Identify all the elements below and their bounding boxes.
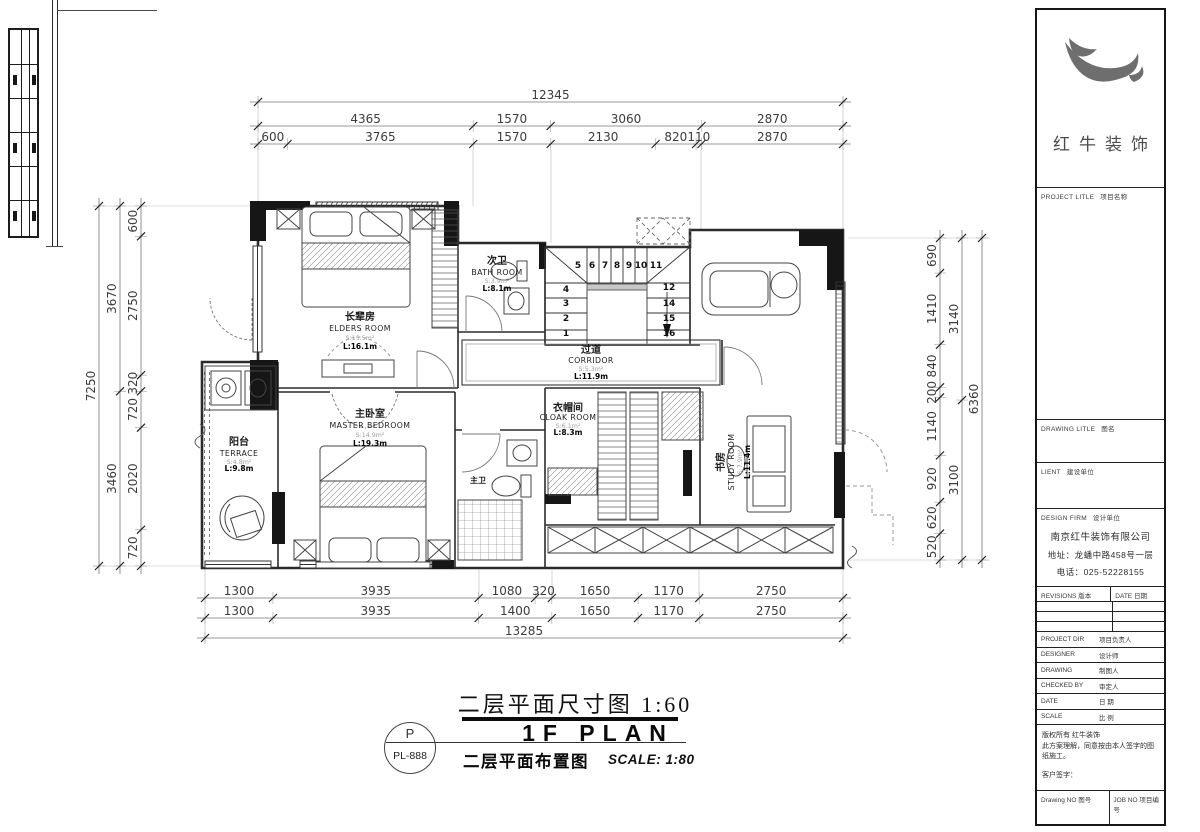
doors	[210, 296, 762, 472]
study-chaise	[702, 263, 800, 315]
scale-label: SCALE: 1:80	[608, 752, 695, 767]
field-row: SCALE比 例	[1037, 710, 1164, 726]
field-row: DRAWING制图人	[1037, 663, 1164, 679]
dim-value: 2750	[756, 584, 787, 598]
svg-text:L:19.3m: L:19.3m	[353, 439, 387, 448]
strip-line	[29, 30, 30, 236]
dim-value: 2130	[588, 130, 619, 144]
svg-text:阳台: 阳台	[229, 435, 249, 448]
logo-area: 红牛装饰	[1037, 10, 1164, 187]
date-column-label: DATE 日期	[1110, 587, 1164, 601]
dim-value: 520	[925, 535, 939, 558]
dim-row: 69014108402001140920620520	[925, 230, 946, 568]
dim-value: 1570	[497, 130, 528, 144]
rotated-label-mark	[32, 143, 36, 153]
rotated-label-mark	[32, 75, 36, 85]
label-elders-room: 长辈房 ELDERS ROOM S:15.5m² L:16.1m	[329, 310, 391, 351]
dim-value: 920	[925, 467, 939, 490]
field-label-en: DRAWING	[1041, 667, 1099, 674]
strip-line	[10, 200, 37, 201]
red-bull-logo-icon	[1055, 26, 1147, 98]
skylight-dashed	[637, 218, 690, 244]
label-master-bedroom: 主卧室 MASTER BEDROOM S:14.9m² L:19.3m	[330, 407, 411, 448]
dim-value: 840	[925, 355, 939, 378]
label-master-bath: 主卫	[470, 475, 486, 485]
project-title-section: PROJECT LITLE项目名称	[1037, 187, 1164, 419]
svg-text:长辈房: 长辈房	[345, 310, 375, 323]
left-sheet-strip	[8, 28, 39, 238]
copyright-line: 客户签字：	[1042, 771, 1159, 782]
strip-line	[21, 30, 22, 236]
dim-value: 1410	[925, 294, 939, 325]
dim-value: 3460	[105, 463, 119, 494]
strip-line	[10, 64, 37, 65]
project-label-cn: 项目名称	[1100, 194, 1127, 201]
elders-wardrobe	[432, 210, 458, 328]
dim-value: 2870	[757, 130, 788, 144]
dim-value: 3935	[361, 604, 392, 618]
dim-value: 1300	[224, 584, 255, 598]
field-label-en: PROJECT DIR	[1041, 636, 1099, 643]
dim-value: 1650	[580, 604, 611, 618]
firm-label-cn: 设计单位	[1093, 515, 1120, 522]
stair-number: 11	[650, 261, 663, 271]
field-row: CHECKED BY审定人	[1037, 679, 1164, 695]
dim-value: 3060	[611, 112, 642, 126]
wall-break-mark	[195, 424, 205, 448]
dim-value: 3935	[361, 584, 392, 598]
master-bath-door	[462, 434, 500, 472]
dim-row: 60027503207202020720	[126, 198, 147, 574]
dim-value: 6360	[967, 384, 981, 415]
dim-value: 110	[687, 130, 710, 144]
dim-value: 1080	[492, 584, 523, 598]
copyright-line: 此方案理解，同意按由本人签字的图纸施工。	[1042, 742, 1159, 763]
dim-row: 36703460	[105, 198, 126, 574]
client-label-cn: 建设单位	[1067, 469, 1094, 476]
svg-text:S:14.9m²: S:14.9m²	[356, 432, 385, 439]
revision-row	[1037, 622, 1164, 632]
plan-code-marker: P PL-888	[384, 722, 436, 774]
stair-number: 2	[563, 314, 569, 324]
stair-number: 10	[635, 261, 648, 271]
drawing-label-en: DRAWING LITLE	[1041, 426, 1095, 433]
svg-text:TERRACE: TERRACE	[219, 449, 259, 458]
dim-value: 720	[126, 398, 140, 421]
field-row: DATE日 期	[1037, 694, 1164, 710]
dim-plan-title: 二层平面尺寸图 1:60	[455, 687, 695, 719]
svg-text:CLOAK ROOM: CLOAK ROOM	[540, 413, 597, 422]
master-bath-fixtures	[458, 440, 537, 560]
client-section: LIENT建设单位	[1037, 462, 1164, 508]
dim-value: 3140	[947, 304, 961, 335]
revision-row	[1037, 602, 1164, 612]
rotated-label-mark	[32, 211, 36, 221]
rotated-label-mark	[13, 75, 17, 85]
dim-value: 1570	[497, 112, 528, 126]
company-name: 红牛装饰	[1037, 130, 1164, 155]
svg-text:L:16.1m: L:16.1m	[343, 342, 377, 351]
dim-value: 12345	[531, 88, 569, 102]
field-label-cn: 项目负责人	[1099, 634, 1132, 644]
svg-text:次卫: 次卫	[487, 254, 507, 267]
field-label-en: CHECKED BY	[1041, 682, 1099, 689]
svg-text:L:9.8m: L:9.8m	[225, 464, 254, 473]
svg-text:BATH ROOM: BATH ROOM	[471, 268, 522, 277]
field-label-cn: 设计师	[1099, 650, 1119, 660]
dim-value: 820	[664, 130, 687, 144]
sheet-edge-line	[57, 0, 58, 246]
drawing-sheet: { "titles": { "dim_plan_title": "二层平面尺寸图…	[0, 0, 1200, 832]
revision-row	[1037, 612, 1164, 622]
rotated-label-mark	[13, 211, 17, 221]
field-label-cn: 日 期	[1099, 696, 1114, 706]
field-label-en: DATE	[1041, 698, 1099, 705]
drawing-no-cell: Drawing NO 图号	[1037, 791, 1110, 826]
label-terrace: 阳台 TERRACE S:4.8m² L:9.8m	[219, 435, 259, 473]
project-label-en: PROJECT LITLE	[1041, 194, 1094, 201]
copyright-note: 版权所有 红牛装饰此方案理解，同意按由本人签字的图纸施工。客户签字：	[1037, 725, 1164, 790]
dim-value: 7250	[84, 371, 98, 402]
job-no-label: JOB NO 项目编号	[1113, 797, 1159, 814]
dim-value: 4365	[350, 112, 381, 126]
svg-text:书房: 书房	[714, 452, 727, 472]
dim-value: 2020	[126, 463, 140, 494]
sheet-edge-line	[52, 0, 53, 246]
dim-row: 31403100	[947, 230, 968, 568]
stair-number: 8	[614, 261, 620, 271]
dim-value: 2750	[756, 604, 787, 618]
label-bath-room: 次卫 BATH ROOM S:3.9m² L:8.1m	[471, 254, 522, 293]
svg-text:ELDERS ROOM: ELDERS ROOM	[329, 324, 391, 333]
dim-row: 12345	[250, 88, 851, 108]
stair-number: 15	[663, 314, 676, 324]
dim-value: 320	[126, 372, 140, 395]
elders-bed	[302, 207, 410, 307]
client-label-en: LIENT	[1041, 469, 1061, 476]
elders-door	[417, 351, 454, 388]
stair-number: 3	[563, 299, 569, 309]
study-door	[724, 347, 762, 385]
strip-line	[10, 98, 37, 99]
field-row: DESIGNER设计师	[1037, 648, 1164, 664]
dim-row: 130039351080320165011702750	[197, 584, 851, 604]
job-no-cell: JOB NO 项目编号	[1110, 791, 1164, 826]
firm-name: 南京红牛装饰有限公司	[1037, 529, 1164, 543]
storage-cabinets	[548, 527, 833, 553]
svg-text:MASTER BEDROOM: MASTER BEDROOM	[330, 421, 411, 430]
svg-text:L:11.4m: L:11.4m	[743, 445, 752, 479]
firm-address: 地址：龙蟠中路458号一层	[1037, 549, 1164, 561]
dim-row: 13285	[197, 624, 851, 644]
dim-value: 3670	[105, 283, 119, 314]
rotated-label-mark	[13, 143, 17, 153]
revisions-section: REVISIONS 版本 DATE 日期	[1037, 586, 1164, 632]
sheet-edge-line	[46, 246, 63, 247]
firm-phone: 电话：025-52228155	[1037, 566, 1164, 578]
window-right	[836, 282, 845, 444]
label-cloak-room: 衣帽间 CLOAK ROOM S:6.1m² L:8.3m	[540, 401, 597, 437]
drawing-title-section: DRAWING LITLE图名	[1037, 419, 1164, 462]
dim-value: 13285	[505, 624, 543, 638]
dim-value: 1400	[500, 604, 531, 618]
label-corridor: 过道 CORRIDOR S:5.3m² L:11.9m	[568, 343, 614, 381]
dim-row: 6003765157021308201102870	[250, 130, 851, 150]
dim-value: 1170	[653, 584, 684, 598]
stair-number: 1	[563, 329, 569, 339]
strip-line	[10, 132, 37, 133]
dim-value: 2870	[757, 112, 788, 126]
terrace-door	[210, 298, 252, 340]
dim-value: 1650	[580, 584, 611, 598]
dim-value: 620	[925, 506, 939, 529]
svg-text:S:15.5m²: S:15.5m²	[346, 335, 375, 342]
dim-value: 1170	[653, 604, 684, 618]
svg-text:L:11.9m: L:11.9m	[574, 372, 608, 381]
svg-text:L:8.1m: L:8.1m	[483, 284, 512, 293]
copyright-line: 版权所有 红牛装饰	[1042, 731, 1159, 742]
field-label-cn: 审定人	[1099, 681, 1119, 691]
dim-value: 3765	[365, 130, 396, 144]
number-cells: Drawing NO 图号 JOB NO 项目编号	[1037, 790, 1164, 826]
sheet-edge-line	[57, 10, 157, 11]
plan-code-letter: P	[385, 726, 435, 741]
stair-number: 9	[626, 261, 632, 271]
drawing-no-label: Drawing NO 图号	[1041, 797, 1091, 804]
svg-text:过道: 过道	[581, 343, 601, 356]
dim-value: 3100	[947, 465, 961, 496]
layout-plan-title: 二层平面布置图	[463, 748, 623, 772]
dim-value: 690	[925, 244, 939, 267]
design-firm-section: DESIGN FIRM设计单位 南京红牛装饰有限公司 地址：龙蟠中路458号一层…	[1037, 508, 1164, 586]
drawing-label-cn: 图名	[1101, 426, 1115, 433]
stair-number: 14	[663, 299, 676, 309]
field-label-en: DESIGNER	[1041, 651, 1099, 658]
signature-fields: PROJECT DIR项目负责人DESIGNER设计师DRAWING制图人CHE…	[1037, 632, 1164, 725]
dim-value: 720	[126, 536, 140, 559]
dim-row: 6360	[967, 230, 988, 568]
stair-step-numbers: 432156789101112141516	[563, 261, 675, 339]
stair-number: 12	[663, 283, 676, 293]
dim-value: 2750	[126, 290, 140, 321]
stair-number: 6	[589, 261, 595, 271]
dim-value: 600	[126, 210, 140, 233]
field-label-cn: 比 例	[1099, 712, 1114, 722]
firm-label-en: DESIGN FIRM	[1041, 515, 1087, 522]
strip-line	[10, 166, 37, 167]
dim-value: 600	[261, 130, 284, 144]
stair-number: 7	[602, 261, 608, 271]
stair-number: 4	[563, 285, 569, 295]
dim-row: 7250	[84, 198, 105, 574]
plan-code: PL-888	[385, 750, 435, 762]
exterior-right-marks	[845, 430, 893, 568]
svg-text:L:8.3m: L:8.3m	[554, 428, 583, 437]
svg-text:CORRIDOR: CORRIDOR	[568, 356, 614, 365]
stair-number: 5	[575, 261, 581, 271]
dim-row: 130039351400165011702750	[197, 604, 851, 624]
master-bed	[316, 446, 430, 568]
field-label-cn: 制图人	[1099, 665, 1119, 675]
dim-value: 320	[532, 584, 555, 598]
bath-door	[466, 296, 502, 332]
field-row: PROJECT DIR项目负责人	[1037, 632, 1164, 648]
dim-value: 1140	[925, 411, 939, 442]
field-label-en: SCALE	[1041, 713, 1099, 720]
shower-area	[458, 500, 522, 560]
svg-text:STUDY ROOM: STUDY ROOM	[727, 434, 736, 491]
dim-value: 200	[925, 381, 939, 404]
dim-value: 1300	[224, 604, 255, 618]
svg-text:主卧室: 主卧室	[355, 407, 385, 420]
label-study-room: 书房 STUDY ROOM S:7.9m² L:11.4m	[714, 434, 752, 491]
revisions-label: REVISIONS 版本	[1037, 587, 1110, 601]
title-block: 红牛装饰 PROJECT LITLE项目名称 DRAWING LITLE图名 L…	[1035, 8, 1166, 826]
staircase	[545, 218, 690, 345]
stair-number: 16	[663, 329, 676, 339]
dim-row: 4365157030602870	[250, 112, 851, 132]
